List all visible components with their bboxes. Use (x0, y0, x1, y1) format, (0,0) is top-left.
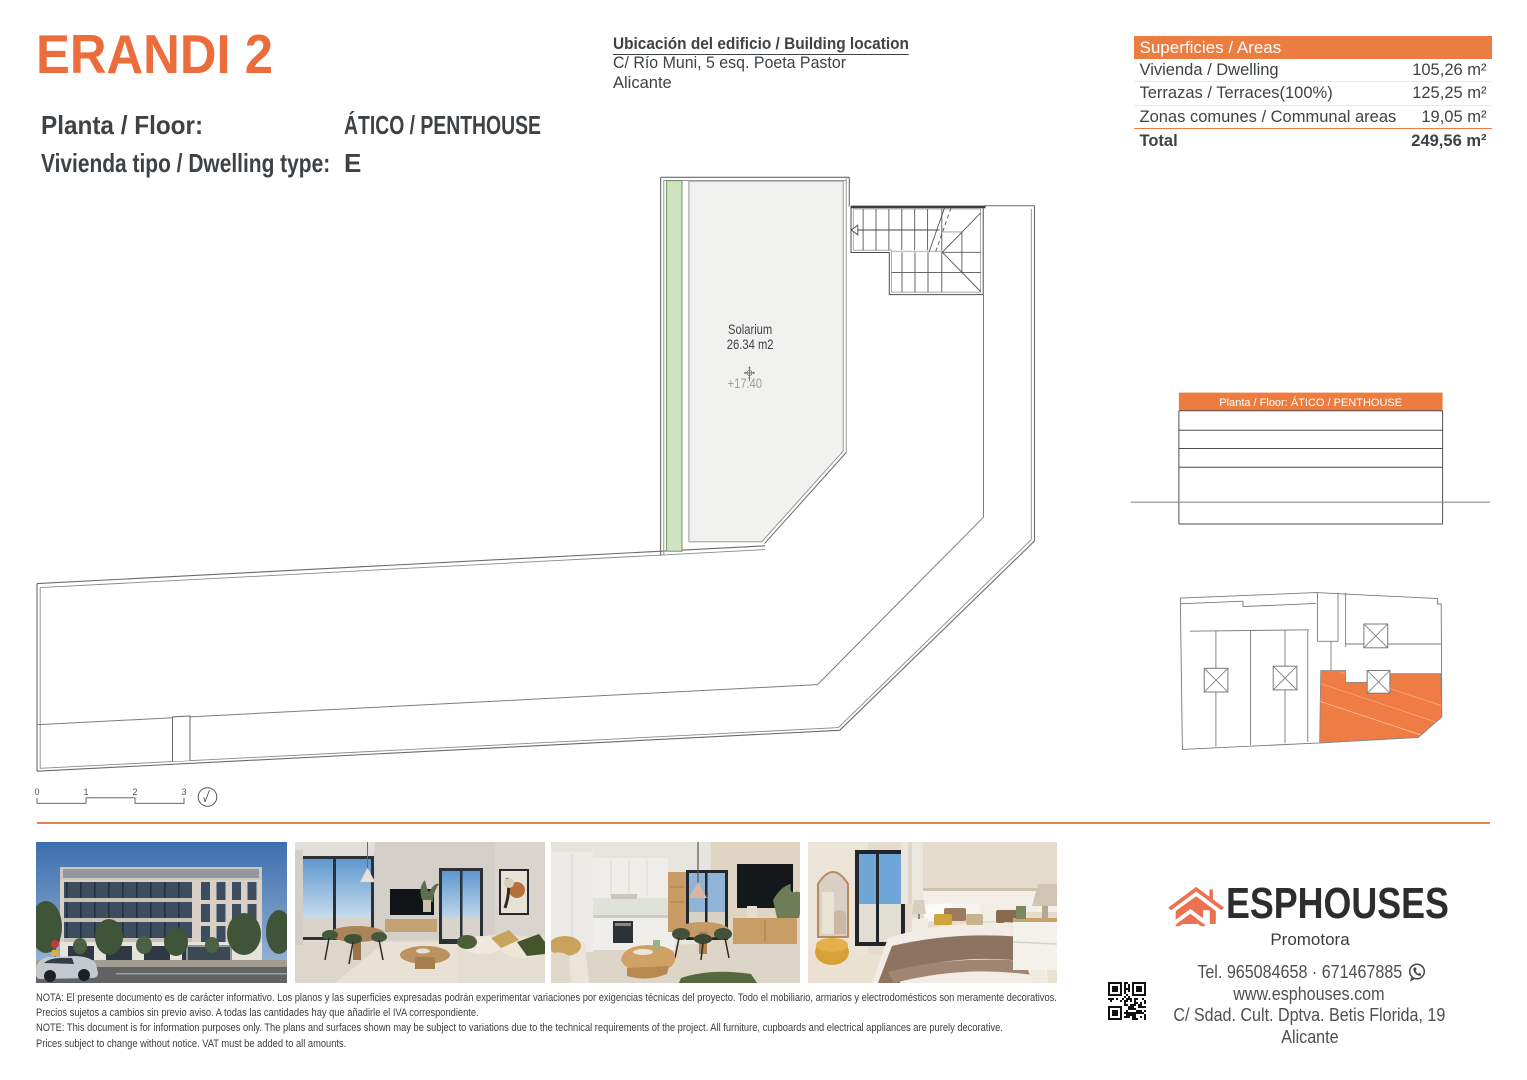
svg-text:3: 3 (182, 787, 187, 797)
svg-text:1: 1 (84, 787, 89, 797)
svg-text:Planta / Floor: ÁTICO / PENTHO: Planta / Floor: ÁTICO / PENTHOUSE (1219, 396, 1402, 409)
svg-text:0: 0 (35, 787, 40, 797)
svg-text:2: 2 (133, 787, 138, 797)
